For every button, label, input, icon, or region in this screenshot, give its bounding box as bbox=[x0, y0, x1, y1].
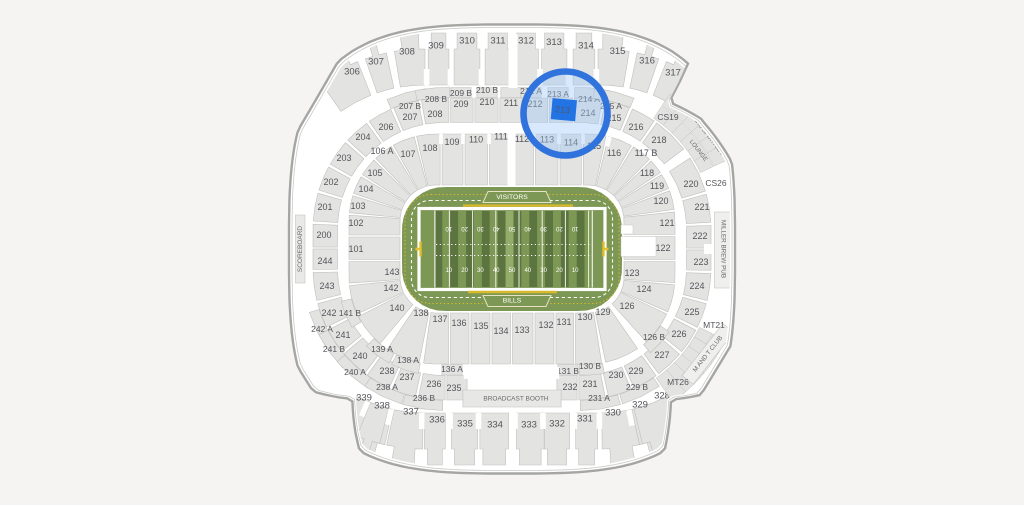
svg-text:231: 231 bbox=[582, 379, 597, 389]
svg-text:315: 315 bbox=[610, 46, 626, 57]
svg-text:209: 209 bbox=[453, 99, 468, 109]
svg-text:140: 140 bbox=[389, 303, 404, 313]
svg-text:244: 244 bbox=[317, 256, 332, 266]
svg-text:40: 40 bbox=[493, 268, 500, 274]
svg-text:SCOREBOARD: SCOREBOARD bbox=[297, 226, 304, 273]
svg-text:VISITORS: VISITORS bbox=[496, 194, 528, 201]
svg-text:106 A: 106 A bbox=[370, 146, 393, 156]
svg-text:143: 143 bbox=[384, 267, 399, 277]
svg-text:108: 108 bbox=[422, 143, 437, 153]
svg-text:209 B: 209 B bbox=[450, 88, 473, 98]
svg-text:221: 221 bbox=[694, 202, 709, 212]
svg-text:132: 132 bbox=[538, 320, 553, 330]
svg-text:138: 138 bbox=[413, 308, 428, 318]
svg-text:220: 220 bbox=[683, 179, 698, 189]
svg-text:208 B: 208 B bbox=[425, 94, 448, 104]
svg-text:142: 142 bbox=[383, 283, 398, 293]
svg-text:30: 30 bbox=[477, 268, 484, 274]
svg-text:30: 30 bbox=[476, 225, 483, 231]
svg-text:40: 40 bbox=[524, 225, 531, 231]
svg-text:111: 111 bbox=[494, 132, 508, 142]
svg-text:120: 120 bbox=[653, 196, 668, 206]
svg-text:337: 337 bbox=[403, 407, 419, 418]
svg-text:50: 50 bbox=[509, 268, 516, 274]
svg-text:311: 311 bbox=[490, 36, 505, 47]
svg-text:135: 135 bbox=[473, 321, 488, 331]
svg-text:238 A: 238 A bbox=[376, 382, 398, 392]
svg-text:235: 235 bbox=[446, 383, 461, 393]
svg-text:30: 30 bbox=[540, 268, 547, 274]
svg-text:110: 110 bbox=[469, 135, 483, 145]
svg-text:124: 124 bbox=[636, 284, 651, 294]
svg-text:137: 137 bbox=[432, 314, 447, 324]
svg-text:20: 20 bbox=[555, 225, 562, 231]
svg-text:CS26: CS26 bbox=[705, 178, 727, 188]
svg-text:313: 313 bbox=[546, 37, 562, 48]
svg-text:202: 202 bbox=[323, 177, 338, 187]
svg-text:307: 307 bbox=[368, 57, 384, 68]
svg-text:10: 10 bbox=[445, 268, 452, 274]
svg-text:20: 20 bbox=[461, 225, 468, 231]
svg-text:243: 243 bbox=[319, 281, 334, 291]
svg-text:102: 102 bbox=[348, 218, 363, 228]
svg-text:116: 116 bbox=[607, 148, 621, 158]
svg-text:335: 335 bbox=[457, 419, 473, 430]
svg-text:223: 223 bbox=[693, 257, 708, 267]
svg-text:339: 339 bbox=[356, 393, 372, 404]
svg-text:207: 207 bbox=[402, 112, 417, 122]
svg-text:310: 310 bbox=[459, 36, 475, 47]
svg-text:10: 10 bbox=[572, 268, 579, 274]
svg-text:332: 332 bbox=[549, 419, 565, 430]
svg-text:208: 208 bbox=[427, 109, 442, 119]
svg-text:230: 230 bbox=[608, 370, 623, 380]
svg-text:211: 211 bbox=[504, 98, 518, 108]
svg-text:213: 213 bbox=[555, 104, 571, 115]
svg-text:BILLS: BILLS bbox=[503, 298, 522, 305]
svg-text:242: 242 bbox=[321, 308, 336, 318]
svg-text:312: 312 bbox=[518, 36, 534, 47]
svg-text:10: 10 bbox=[571, 225, 578, 231]
svg-text:121: 121 bbox=[659, 218, 674, 228]
svg-text:BROADCAST BOOTH: BROADCAST BOOTH bbox=[483, 396, 549, 403]
svg-text:MT26: MT26 bbox=[667, 377, 689, 387]
svg-text:109: 109 bbox=[444, 137, 459, 147]
svg-text:50: 50 bbox=[508, 225, 515, 231]
svg-text:139 A: 139 A bbox=[371, 344, 393, 354]
svg-text:316: 316 bbox=[639, 56, 655, 67]
svg-text:141 B: 141 B bbox=[339, 308, 362, 318]
svg-text:218: 218 bbox=[651, 135, 666, 145]
svg-text:20: 20 bbox=[556, 268, 563, 274]
svg-text:240 A: 240 A bbox=[344, 367, 366, 377]
svg-text:200: 200 bbox=[316, 230, 331, 240]
svg-text:227: 227 bbox=[654, 350, 669, 360]
svg-text:126: 126 bbox=[619, 301, 634, 311]
svg-text:133: 133 bbox=[514, 325, 529, 335]
svg-text:240: 240 bbox=[352, 351, 367, 361]
svg-text:20: 20 bbox=[461, 268, 468, 274]
svg-text:309: 309 bbox=[428, 41, 444, 52]
svg-text:118: 118 bbox=[640, 168, 654, 178]
svg-text:226: 226 bbox=[671, 329, 686, 339]
svg-text:105: 105 bbox=[367, 168, 382, 178]
svg-text:MILLER BREW PUB: MILLER BREW PUB bbox=[720, 220, 727, 278]
svg-text:122: 122 bbox=[655, 243, 670, 253]
svg-text:40: 40 bbox=[492, 225, 499, 231]
svg-text:103: 103 bbox=[350, 201, 365, 211]
svg-text:101: 101 bbox=[348, 244, 363, 254]
svg-text:306: 306 bbox=[344, 67, 360, 78]
svg-text:130: 130 bbox=[577, 312, 592, 322]
svg-text:138 A: 138 A bbox=[397, 355, 419, 365]
svg-text:329: 329 bbox=[632, 400, 648, 411]
svg-text:203: 203 bbox=[336, 153, 351, 163]
svg-text:333: 333 bbox=[521, 420, 537, 431]
svg-text:229: 229 bbox=[628, 366, 643, 376]
svg-text:331: 331 bbox=[577, 414, 593, 425]
svg-text:210 B: 210 B bbox=[476, 85, 499, 95]
svg-text:CS19: CS19 bbox=[657, 112, 679, 122]
svg-text:224: 224 bbox=[689, 281, 704, 291]
svg-text:40: 40 bbox=[524, 268, 531, 274]
svg-text:207 B: 207 B bbox=[399, 101, 422, 111]
svg-text:225: 225 bbox=[684, 307, 699, 317]
svg-text:10: 10 bbox=[445, 225, 452, 231]
svg-text:131 B: 131 B bbox=[557, 366, 580, 376]
svg-text:204: 204 bbox=[355, 132, 370, 142]
svg-text:236 B: 236 B bbox=[413, 393, 436, 403]
svg-text:330: 330 bbox=[605, 408, 621, 419]
svg-text:317: 317 bbox=[665, 68, 681, 79]
svg-text:216: 216 bbox=[628, 122, 643, 132]
svg-text:123: 123 bbox=[624, 268, 639, 278]
svg-text:231 A: 231 A bbox=[588, 393, 610, 403]
svg-text:308: 308 bbox=[399, 47, 415, 58]
svg-text:119: 119 bbox=[650, 181, 664, 191]
svg-text:129: 129 bbox=[595, 307, 610, 317]
svg-text:237: 237 bbox=[399, 372, 414, 382]
svg-text:201: 201 bbox=[317, 202, 332, 212]
svg-text:MT21: MT21 bbox=[703, 320, 725, 330]
svg-text:241: 241 bbox=[335, 330, 350, 340]
svg-text:134: 134 bbox=[493, 326, 508, 336]
svg-text:229 B: 229 B bbox=[626, 382, 649, 392]
svg-text:241 B: 241 B bbox=[323, 344, 346, 354]
svg-text:238: 238 bbox=[379, 366, 394, 376]
svg-text:314: 314 bbox=[578, 41, 594, 52]
svg-text:336: 336 bbox=[429, 415, 445, 426]
svg-text:130 B: 130 B bbox=[579, 361, 602, 371]
svg-text:206: 206 bbox=[378, 122, 393, 132]
svg-text:126 B: 126 B bbox=[643, 332, 666, 342]
svg-text:117 B: 117 B bbox=[635, 148, 658, 158]
svg-text:107: 107 bbox=[400, 149, 415, 159]
svg-text:338: 338 bbox=[374, 401, 390, 412]
svg-text:222: 222 bbox=[692, 231, 707, 241]
svg-text:236: 236 bbox=[426, 379, 441, 389]
svg-text:136: 136 bbox=[451, 318, 466, 328]
svg-text:232: 232 bbox=[562, 382, 577, 392]
svg-text:131: 131 bbox=[556, 317, 571, 327]
svg-text:210: 210 bbox=[479, 97, 494, 107]
svg-text:104: 104 bbox=[358, 184, 373, 194]
svg-text:334: 334 bbox=[487, 420, 503, 431]
svg-text:136 A: 136 A bbox=[441, 364, 463, 374]
svg-text:30: 30 bbox=[540, 225, 547, 231]
svg-text:242 A: 242 A bbox=[311, 324, 333, 334]
